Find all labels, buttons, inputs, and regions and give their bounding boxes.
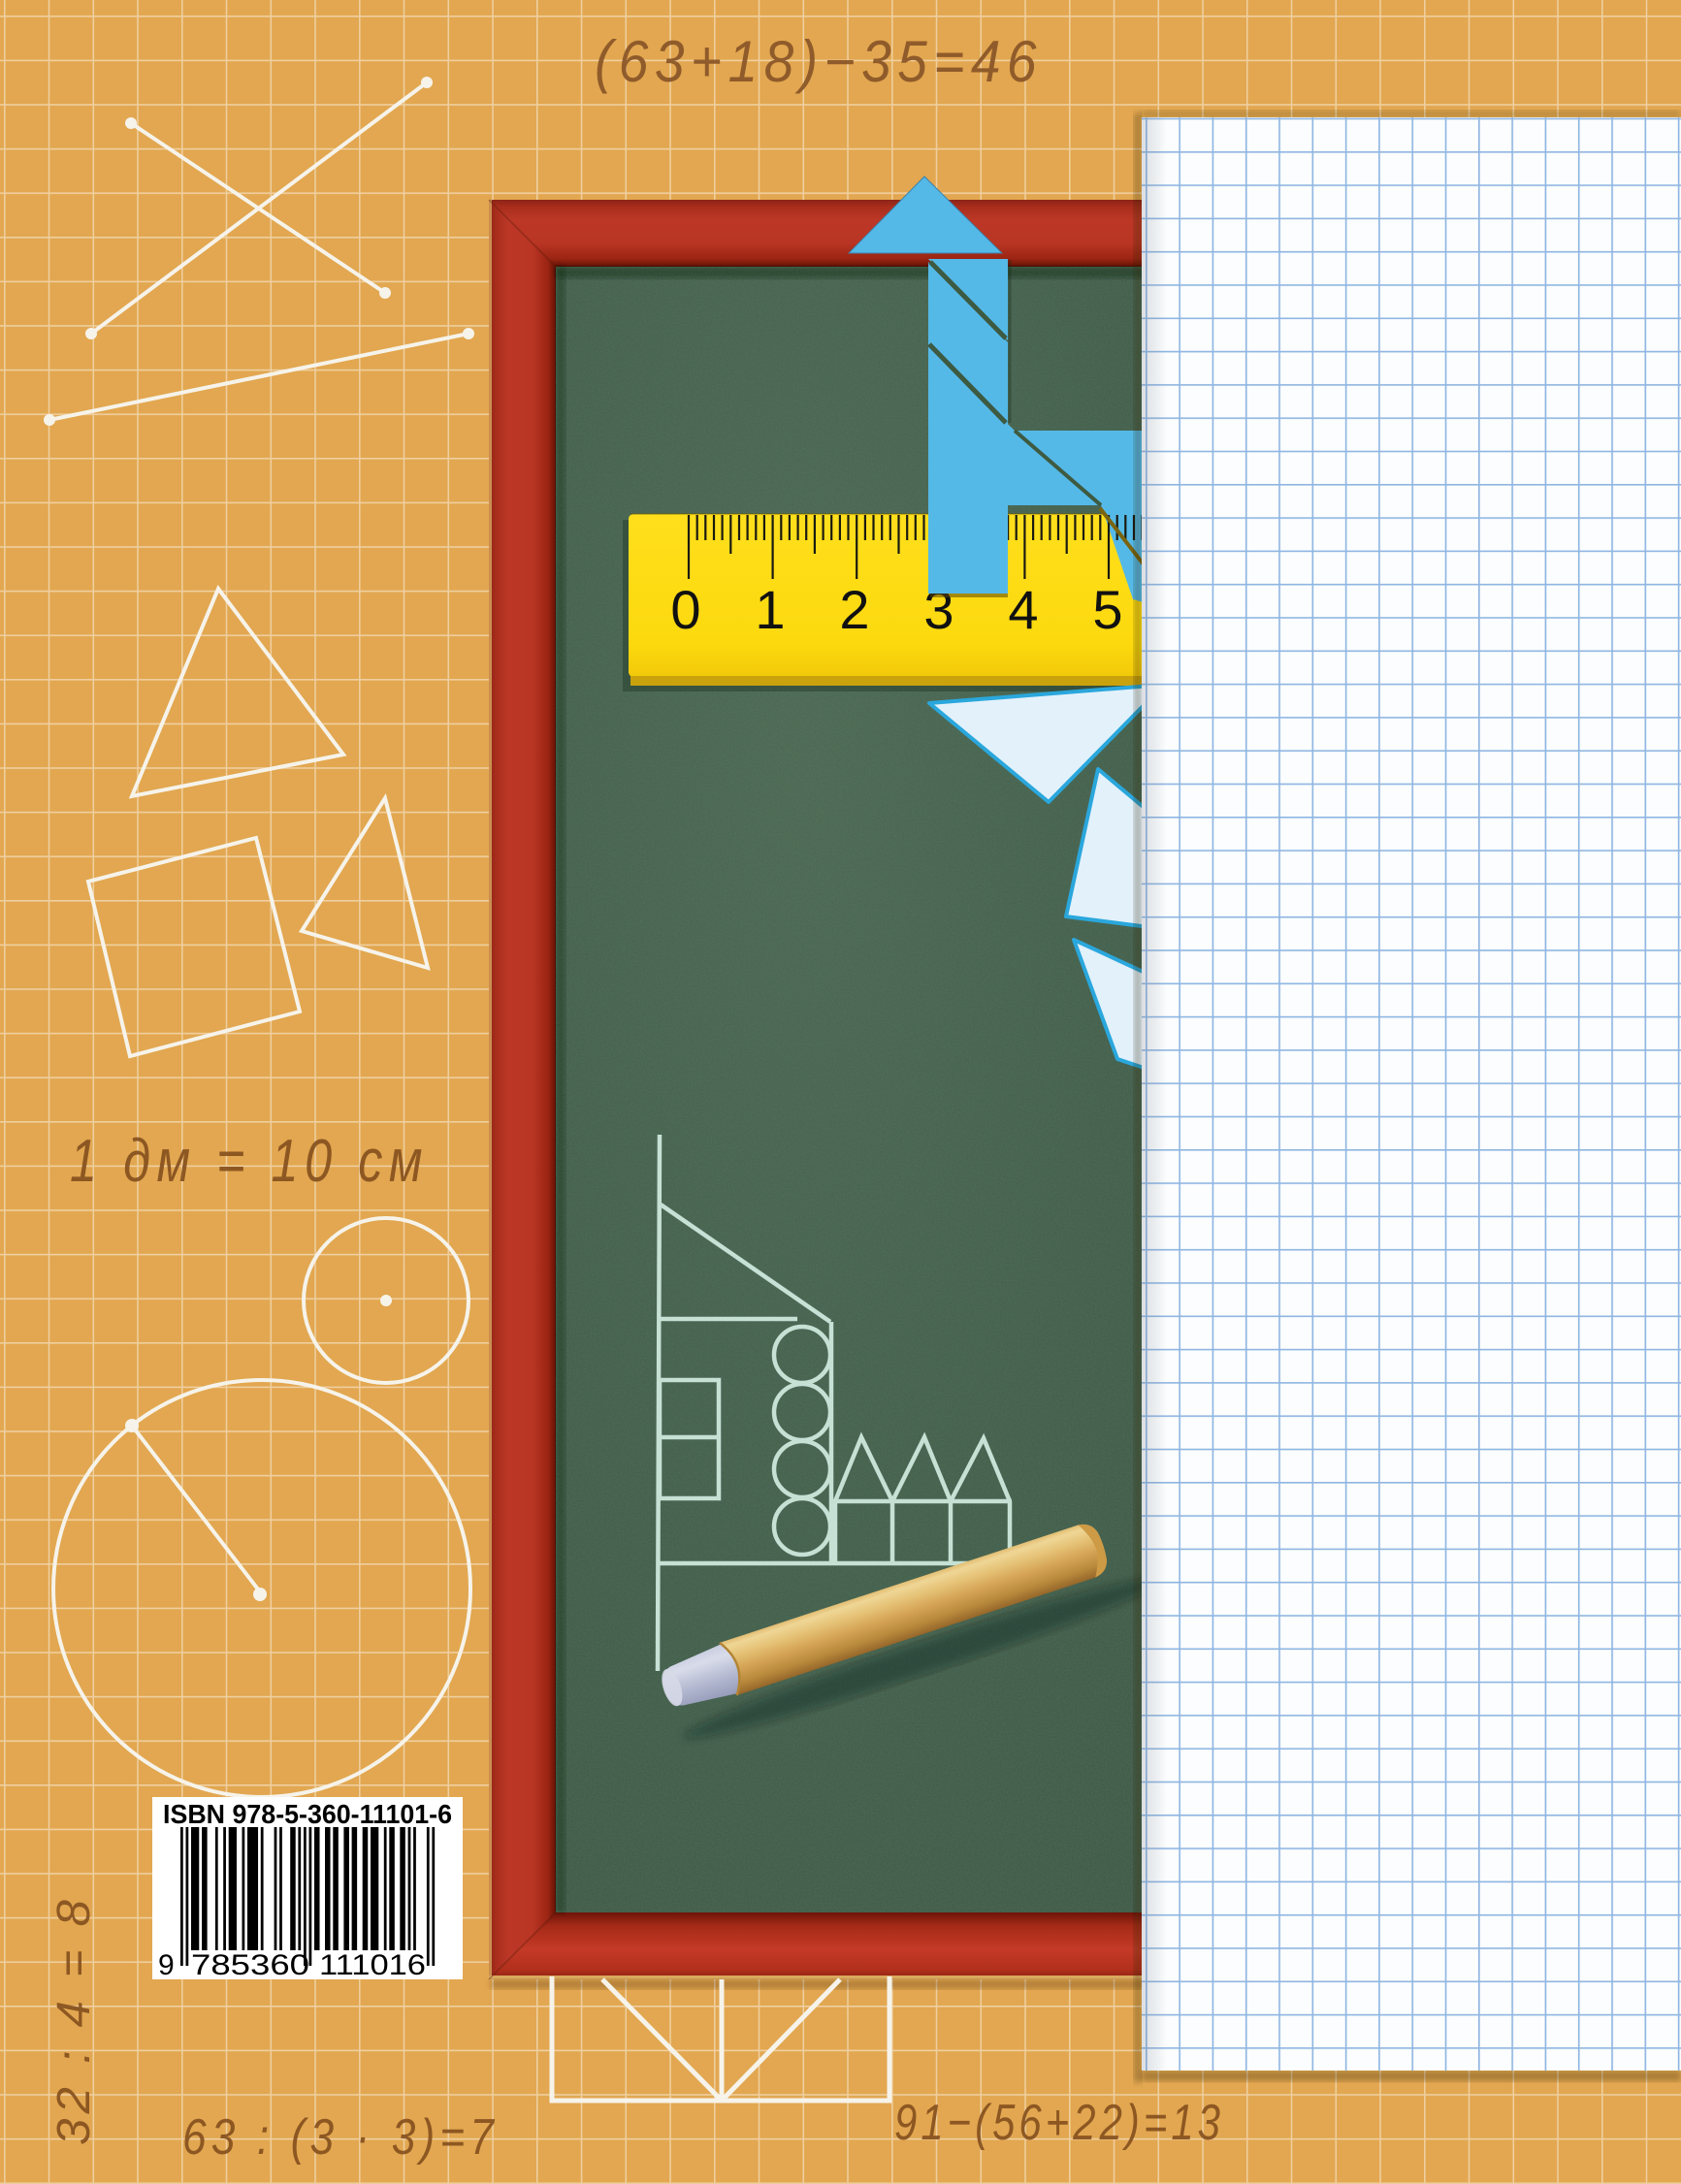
svg-text:4: 4 xyxy=(1008,579,1038,640)
svg-text:785360: 785360 xyxy=(191,1949,309,1981)
svg-text:63 : (3 · 3)=7: 63 : (3 · 3)=7 xyxy=(182,2109,499,2166)
svg-text:1 дм = 10 см: 1 дм = 10 см xyxy=(70,1128,429,1195)
svg-text:32 : 4 = 8: 32 : 4 = 8 xyxy=(48,1895,100,2145)
svg-text:111016: 111016 xyxy=(319,1949,426,1981)
svg-text:91−(56+22)=13: 91−(56+22)=13 xyxy=(894,2095,1224,2151)
svg-text:0: 0 xyxy=(670,579,700,640)
svg-text:2: 2 xyxy=(839,579,869,640)
svg-text:1: 1 xyxy=(755,579,785,640)
svg-text:5: 5 xyxy=(1092,579,1122,640)
svg-text:ISBN 978-5-360-11101-6: ISBN 978-5-360-11101-6 xyxy=(163,1799,452,1829)
svg-text:9: 9 xyxy=(158,1949,175,1981)
svg-text:(63+18)−35=46: (63+18)−35=46 xyxy=(595,29,1043,94)
